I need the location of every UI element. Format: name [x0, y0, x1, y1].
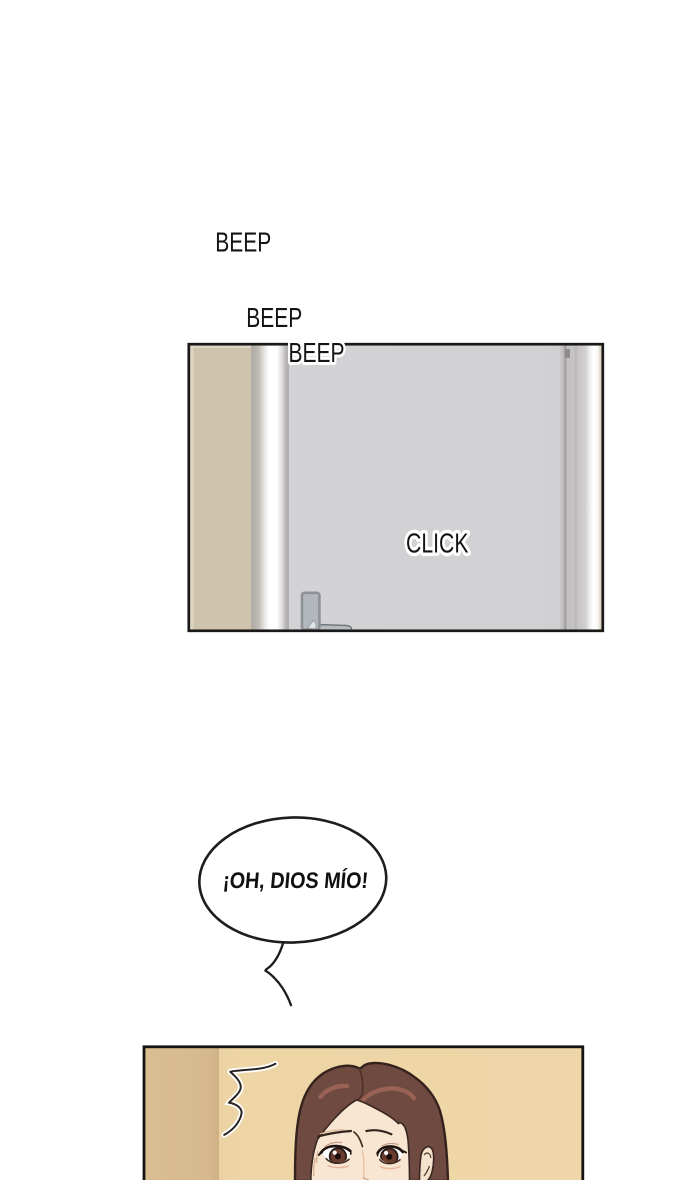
svg-text:BEEP: BEEP [246, 302, 302, 333]
svg-text:BEEP: BEEP [289, 337, 345, 368]
svg-text:CLICK: CLICK [406, 527, 469, 558]
svg-text:BEEP: BEEP [215, 227, 271, 258]
svg-text:¡OH, DIOS MÍO!: ¡OH, DIOS MÍO! [222, 868, 369, 893]
